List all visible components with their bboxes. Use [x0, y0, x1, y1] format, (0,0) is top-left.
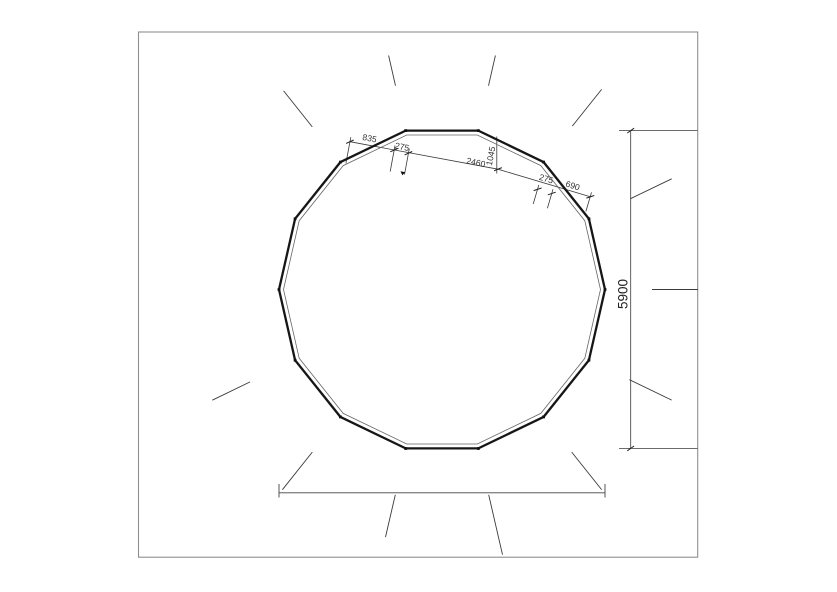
svg-text:5900: 5900: [616, 279, 631, 309]
